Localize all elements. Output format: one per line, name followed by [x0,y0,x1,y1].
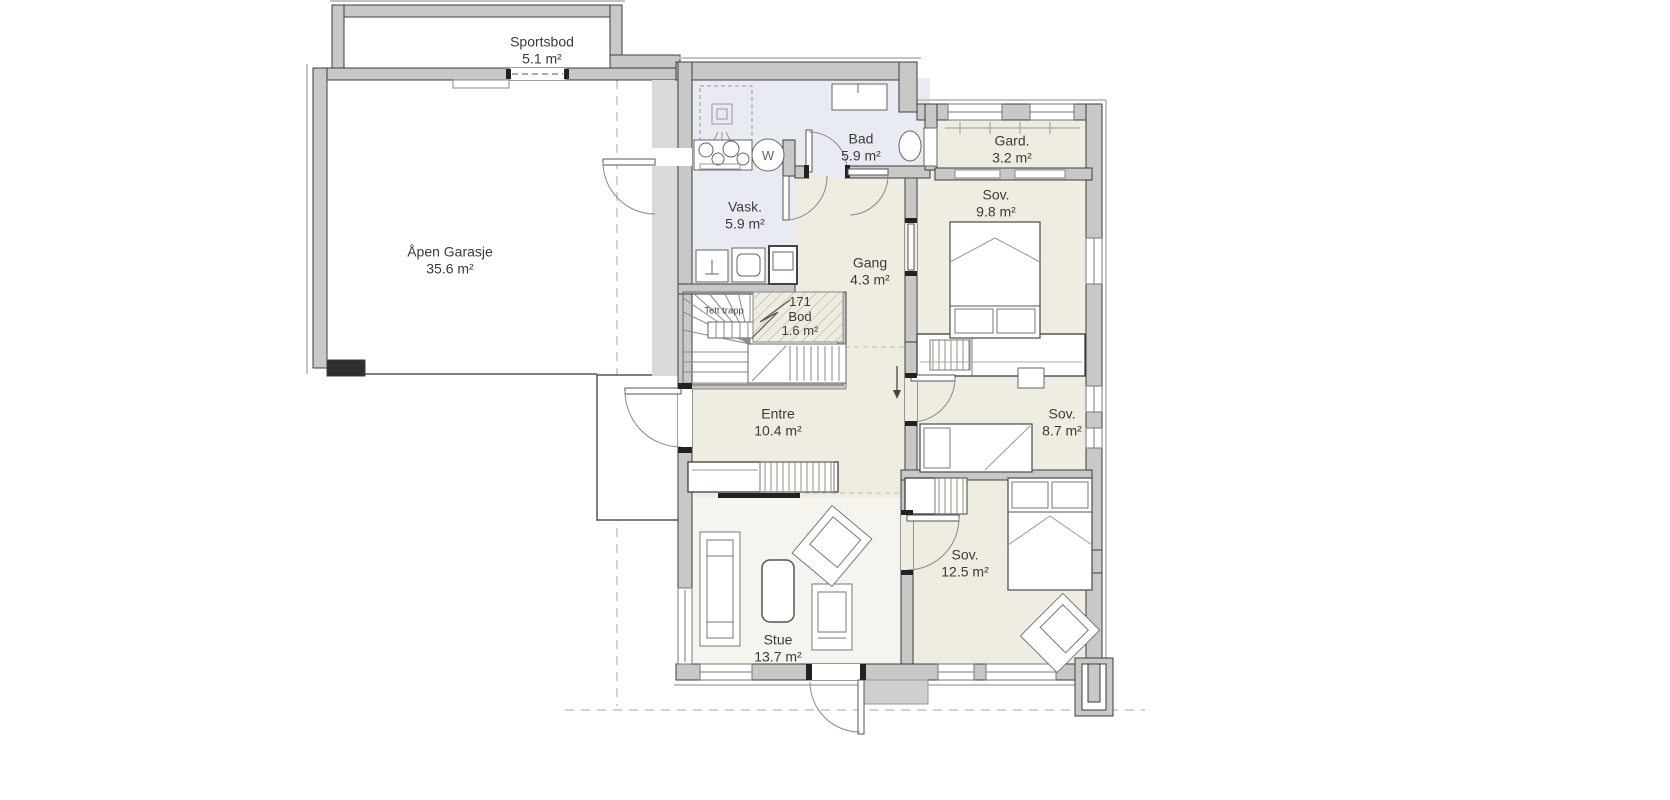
door-sov1 [905,218,917,276]
room-name: Vask. [725,198,765,215]
room-label-garage: Åpen Garasje 35.6 m² [407,243,493,276]
sov3-closet [905,478,967,514]
room-name: Sov. [976,186,1016,203]
room-label-stue: Stue 13.7 m² [754,631,801,664]
top-step-wall [899,62,917,112]
entre-wardrobe [688,462,838,498]
room-label-sov3: Sov. 12.5 m² [941,546,988,579]
room-label-sov1: Sov. 9.8 m² [976,186,1016,219]
room-label-gard: Gard. 3.2 m² [992,132,1032,165]
room-label-sov2: Sov. 8.7 m² [1042,405,1082,438]
sov2-nightstand [1018,368,1044,388]
exterior-step-slab [864,680,928,704]
room-area: 5.9 m² [725,215,765,232]
room-name: Bad [841,130,881,147]
room-area: 1.6 m² [782,324,819,339]
sportsbod-left-wall [332,5,344,70]
room-label-sportsbod: Sportsbod 5.1 m² [510,33,574,66]
room-area: 3.2 m² [992,149,1032,166]
garage-left-wall [313,68,327,368]
room-name: Sov. [941,546,988,563]
room-name: Gang [850,254,890,271]
room-name: Gard. [992,132,1032,149]
entry-porch-outline [597,375,678,520]
floor-plan-canvas: W [0,0,1670,800]
room-label-gang: Gang 4.3 m² [850,254,890,287]
stair-south-wall [683,383,846,389]
washer-letter: W [762,148,775,163]
garage-house-band [652,80,678,376]
bed-sov1-icon [950,222,1040,338]
window [1086,428,1102,448]
window [1030,104,1074,120]
chimney-bump [1075,658,1113,716]
room-name: Entre [754,405,801,422]
room-label-bod: 171 Bod 1.6 m² [782,295,819,339]
window [678,588,692,664]
room-name: Bod [782,310,819,325]
room-name: Stue [754,631,801,648]
room-name: Sportsbod [510,33,574,50]
room-area: 35.6 m² [407,260,493,277]
room-area: 5.9 m² [841,147,881,164]
washing-machine-icon: W [752,139,784,171]
double-sink-icon [694,140,752,170]
room-name: Sov. [1042,405,1082,422]
coffee-table-icon [762,560,794,622]
stair-lower-run [748,344,846,383]
room-area: 10.4 m² [754,422,801,439]
entre-threshold-bar [718,493,800,498]
room-label-entre: Entre 10.4 m² [754,405,801,438]
top-wall-west [676,62,917,80]
sov1-closet [917,334,1085,376]
room-label-vask: Vask. 5.9 m² [725,198,765,231]
bathtub-bench-icon [832,84,887,110]
armchair-icon [812,584,852,650]
garage-walls [307,1,680,376]
window [938,664,974,680]
garage-shelf [453,80,509,88]
floor-plan-drawing: W [0,0,1670,800]
sportsbod-connector-wall [610,55,680,69]
room-area: 5.1 m² [510,50,574,67]
window [948,104,1002,120]
room-area: 9.8 m² [976,203,1016,220]
laundry-counter-icons [696,246,797,284]
room-area: 4.3 m² [850,271,890,288]
window [700,664,752,680]
room-area: 13.7 m² [754,648,801,665]
vask-bad-wall-stub [783,140,795,176]
window [1086,238,1102,284]
sofa-icon [700,532,740,646]
bed-sov3-icon [1008,478,1092,590]
bed-sov2-icon [920,424,1032,472]
window [986,664,1056,680]
room-area: 12.5 m² [941,563,988,580]
garage-top-wall [313,68,678,80]
room-area: 8.7 m² [1042,422,1082,439]
room-label-bad: Bad 5.9 m² [841,130,881,163]
window [1086,386,1102,412]
stair-label: Tett trapp [704,305,744,316]
garage-corner-post [327,360,365,376]
room-name: Åpen Garasje [407,243,493,260]
room-number: 171 [782,295,819,310]
sportsbod-top-wall [332,5,622,17]
